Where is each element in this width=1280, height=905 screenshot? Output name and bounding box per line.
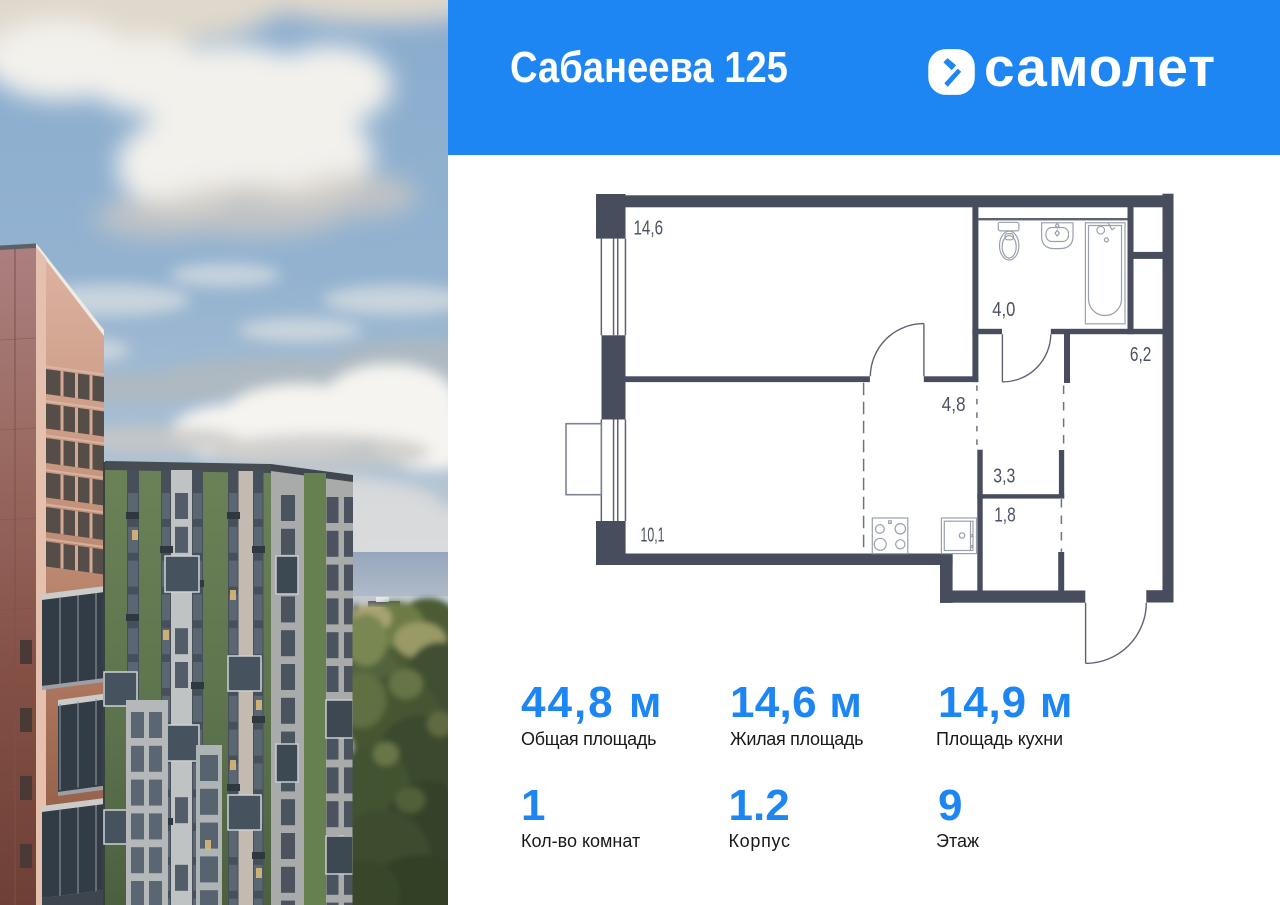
- svg-text:1,8: 1,8: [994, 504, 1016, 527]
- svg-text:10,1: 10,1: [641, 524, 665, 547]
- svg-text:4,0: 4,0: [992, 298, 1015, 321]
- svg-text:4,8: 4,8: [942, 393, 966, 416]
- svg-text:6,2: 6,2: [1130, 343, 1152, 366]
- svg-text:14,6: 14,6: [634, 217, 664, 240]
- svg-text:3,3: 3,3: [993, 465, 1015, 488]
